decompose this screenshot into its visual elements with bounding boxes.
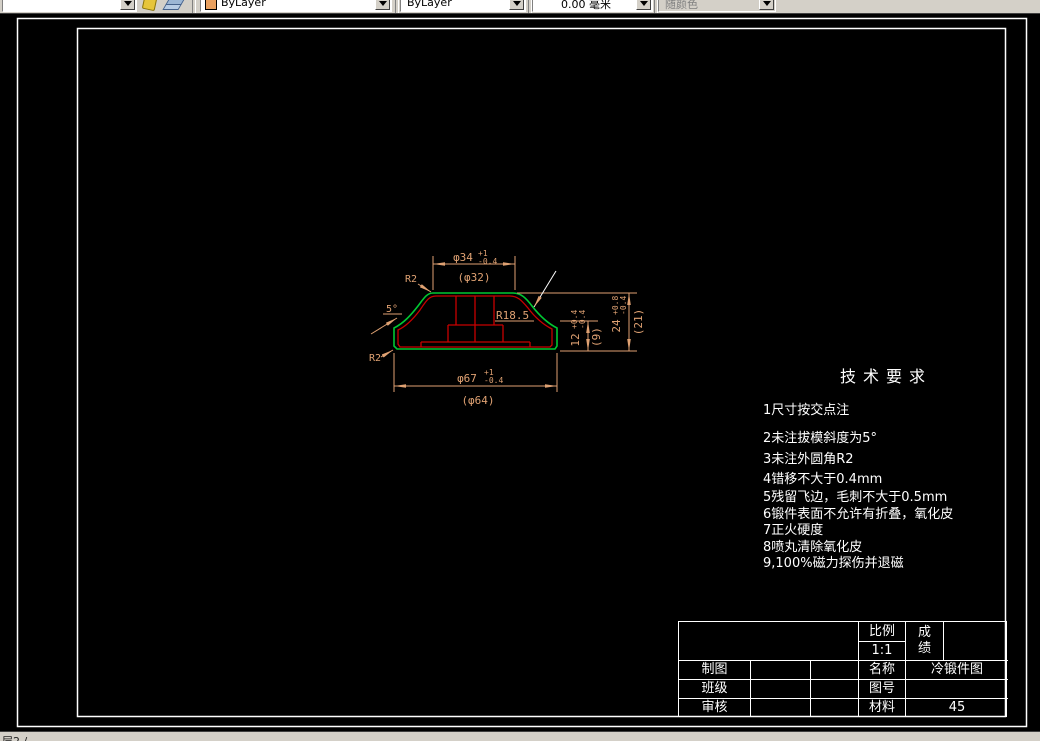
dim-right-inner-tol-dn: -0.4 [578,310,587,329]
layer-properties-button[interactable] [138,0,163,12]
tech-requirement-item: 9,100%磁力探伤并退磁 [763,552,904,571]
titleblock-scale-label: 比例 [859,622,906,642]
toolbar-separator [395,0,399,14]
application-window: ByLayer ByLayer 0.00 毫米 随颜色 [0,0,1040,741]
titleblock-class-label: 班级 [679,680,751,699]
lineweight-combo[interactable]: 0.00 毫米 [532,0,653,12]
dim-right-outer-main: 24 [610,319,623,333]
dim-top-tol-dn: -0.4 [478,257,497,266]
tech-requirement-item: 4错移不大于0.4mm [763,468,882,487]
properties-toolbar: ByLayer ByLayer 0.00 毫米 随颜色 [0,0,1040,14]
dim-right-outer-ref: (21) [632,309,645,336]
linetype-combo-value: ByLayer [407,0,452,9]
dim-top-ref: (φ32) [457,271,490,284]
chevron-down-icon[interactable] [120,0,135,10]
color-combo-value: ByLayer [221,0,266,9]
layer-properties-icon [142,0,157,11]
linetype-combo[interactable]: ByLayer [400,0,526,12]
titleblock-drawno-value [906,680,1008,699]
titleblock-empty-cell [751,680,811,699]
titleblock-grade-label: 成绩 [906,622,944,661]
titleblock-drawno-label: 图号 [859,680,906,699]
chevron-down-icon[interactable] [375,0,390,10]
r2-bottom-leader [381,350,393,357]
draft-angle-leader [371,318,397,334]
dim-bottom-main: φ67 [457,372,477,385]
titleblock-empty-cell [751,699,811,717]
titleblock-empty-cell [811,680,859,699]
dim-right-inner-main: 12 [569,333,582,346]
dim-top-main: φ34 [453,251,473,264]
color-swatch-icon [205,0,217,10]
r2-bottom-label: R2 [369,353,381,364]
fillet-leader-line [534,271,556,307]
titleblock-empty-cell [679,622,859,661]
tech-requirements-title: 技术要求 [840,363,932,387]
layer-combo[interactable] [2,0,137,12]
layers-icon [165,0,184,5]
titleblock-empty-cell [811,699,859,717]
tech-requirement-item: 2未注拔模斜度为5° [763,427,877,446]
layer-states-button[interactable] [163,0,188,12]
status-bar-fragment: 层2 / [2,733,27,741]
r2-top-label: R2 [405,274,417,285]
status-bar: 层2 / [0,731,1040,741]
toolbar-separator [192,0,196,14]
draft-angle-label: 5° [386,304,398,315]
tech-requirement-item: 3未注外圆角R2 [763,448,854,467]
dim-right-outer-tol-dn: -0.4 [619,296,628,315]
titleblock-grade-value [944,622,1008,661]
titleblock-name-label: 名称 [859,661,906,680]
titleblock-empty-cell [811,661,859,680]
plotstyle-combo-value: 随颜色 [665,0,698,12]
fillet-radius-label: R18.5 [496,309,529,322]
chevron-down-icon[interactable] [509,0,524,10]
chevron-down-icon[interactable] [636,0,651,10]
chevron-down-icon [759,0,774,10]
titleblock-empty-cell [751,661,811,680]
titleblock-scale-value: 1:1 [859,642,906,661]
titleblock-drafter-label: 制图 [679,661,751,680]
tech-requirement-item: 1尺寸按交点注 [763,399,849,418]
color-combo[interactable]: ByLayer [200,0,392,12]
plotstyle-combo: 随颜色 [658,0,776,12]
dim-bottom-ref: (φ64) [461,394,494,407]
lineweight-combo-value: 0.00 毫米 [561,0,611,12]
titleblock-material-label: 材料 [859,699,906,717]
r2-top-leader [418,284,431,292]
dim-bottom-tol-dn: -0.4 [484,376,503,385]
title-block: 比例 1:1 成绩 制图 名称 冷锻件图 班级 图号 审核 材料 45 [678,621,1007,717]
titleblock-checker-label: 审核 [679,699,751,717]
titleblock-name-value: 冷锻件图 [906,661,1008,680]
dim-right-inner-ref: (9) [590,327,603,347]
titleblock-material-value: 45 [906,699,1008,717]
